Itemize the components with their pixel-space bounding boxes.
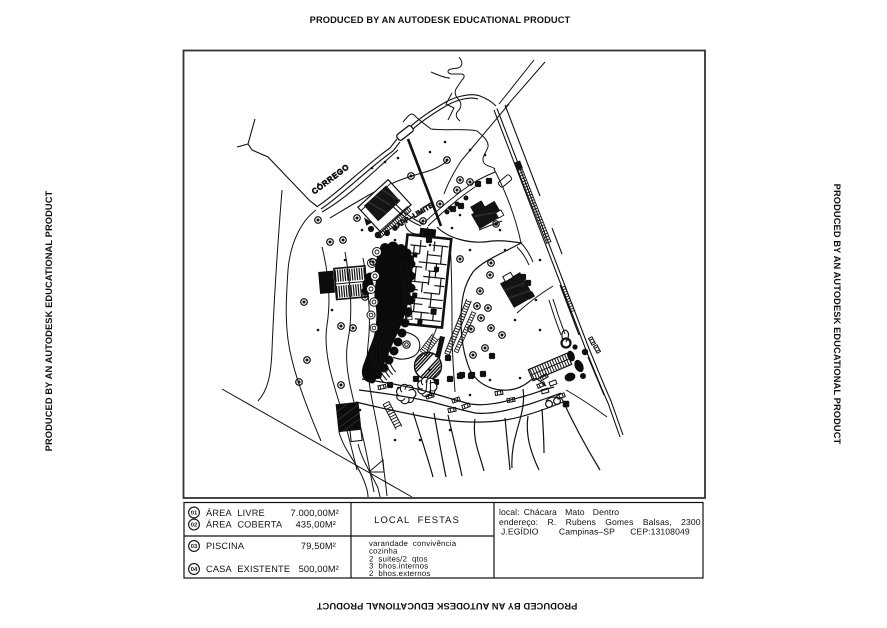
svg-text:04: 04 xyxy=(191,566,198,573)
svg-text:7.000,00M²: 7.000,00M² xyxy=(291,508,339,518)
svg-text:02: 02 xyxy=(191,522,197,529)
svg-text:local: Chácara Mato Dentro: local: Chácara Mato Dentro xyxy=(499,507,619,517)
svg-text:435,00M²: 435,00M² xyxy=(296,520,336,530)
svg-text:79,50M²: 79,50M² xyxy=(301,541,336,551)
svg-text:PISCINA: PISCINA xyxy=(206,541,245,551)
svg-text:J.EGÍDIO Campinas–SP CEP:: J.EGÍDIO Campinas–SP CEP:13108049 xyxy=(501,527,690,537)
svg-text:500,00M²: 500,00M² xyxy=(299,564,339,574)
svg-text:03: 03 xyxy=(191,543,198,550)
svg-text:2 bhos.externos: 2 bhos.externos xyxy=(369,569,431,578)
svg-text:01: 01 xyxy=(191,510,198,517)
svg-text:LOCAL FESTAS: LOCAL FESTAS xyxy=(374,515,460,526)
svg-text:endereço: R. Rubens Gomes: endereço: R. Rubens Gomes Balsas, 2300 xyxy=(499,517,701,527)
svg-text:CASA EXISTENTE: CASA EXISTENTE xyxy=(206,564,290,574)
svg-text:ÁREA COBERTA: ÁREA COBERTA xyxy=(206,520,283,530)
svg-text:ÁREA LIVRE: ÁREA LIVRE xyxy=(206,508,265,518)
